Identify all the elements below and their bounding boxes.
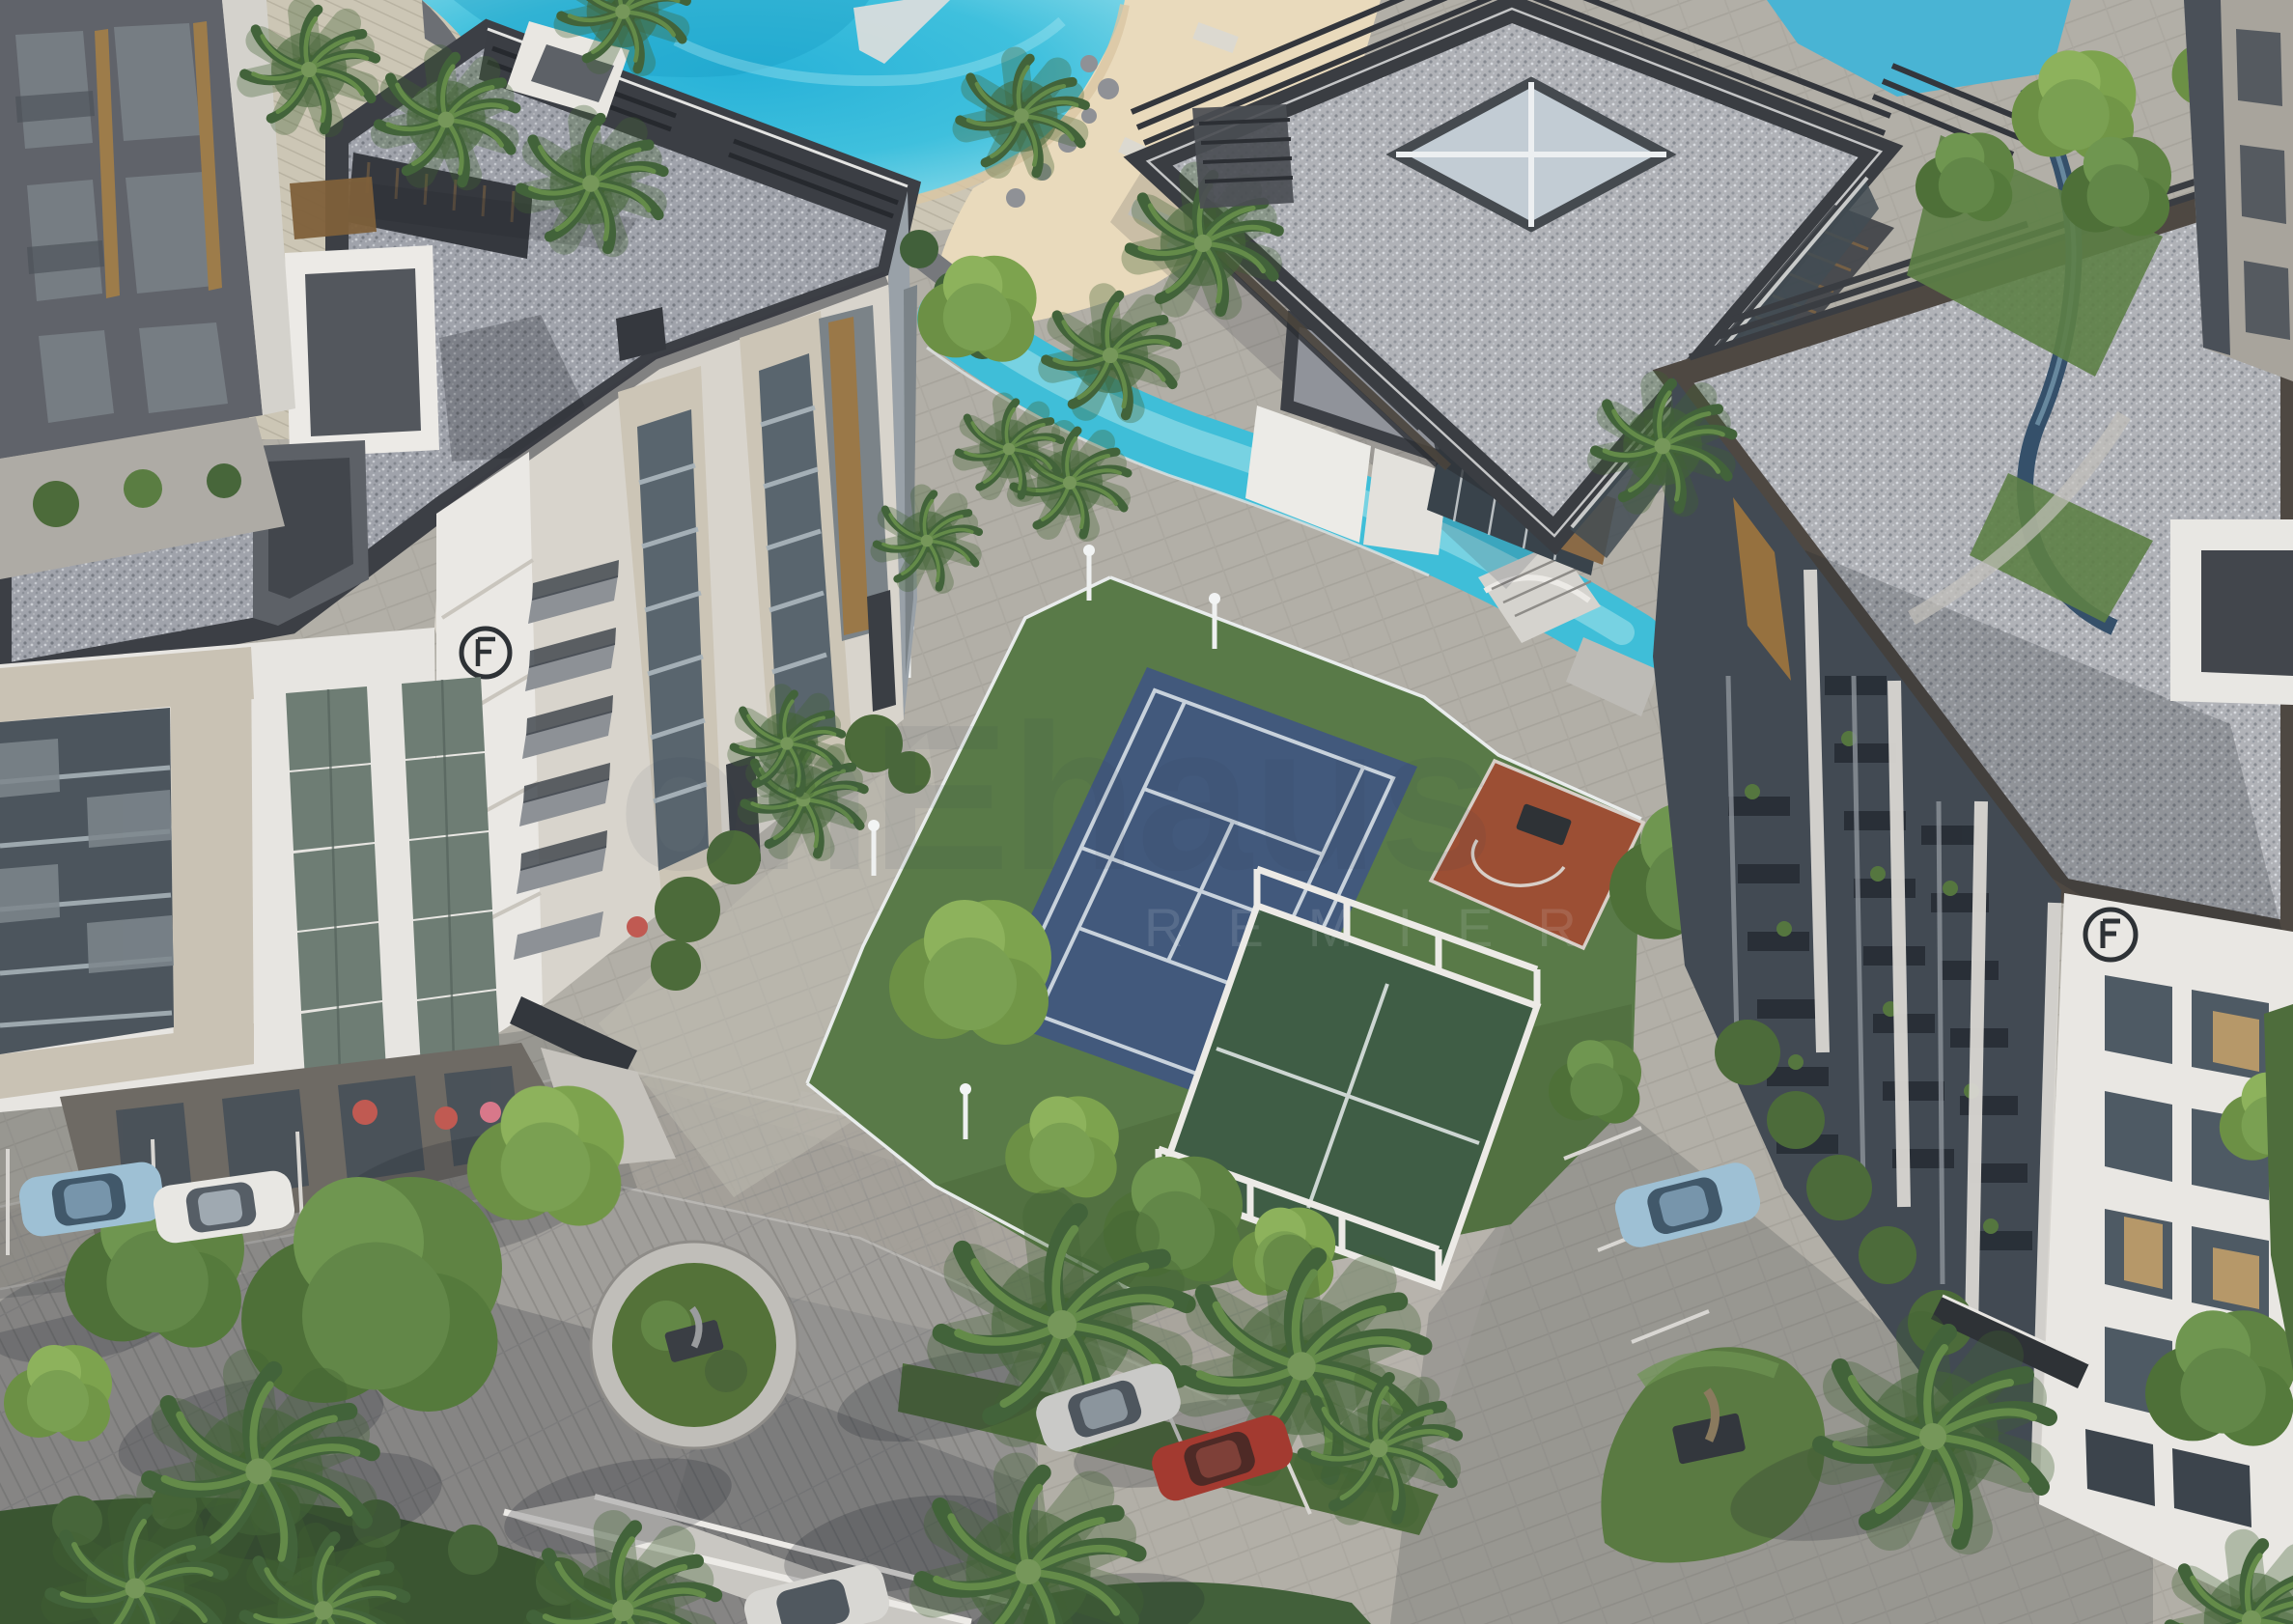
svg-text:REMIER: REMIER	[1144, 897, 1621, 958]
svg-text:onEhaus: onEhaus	[618, 681, 1495, 913]
